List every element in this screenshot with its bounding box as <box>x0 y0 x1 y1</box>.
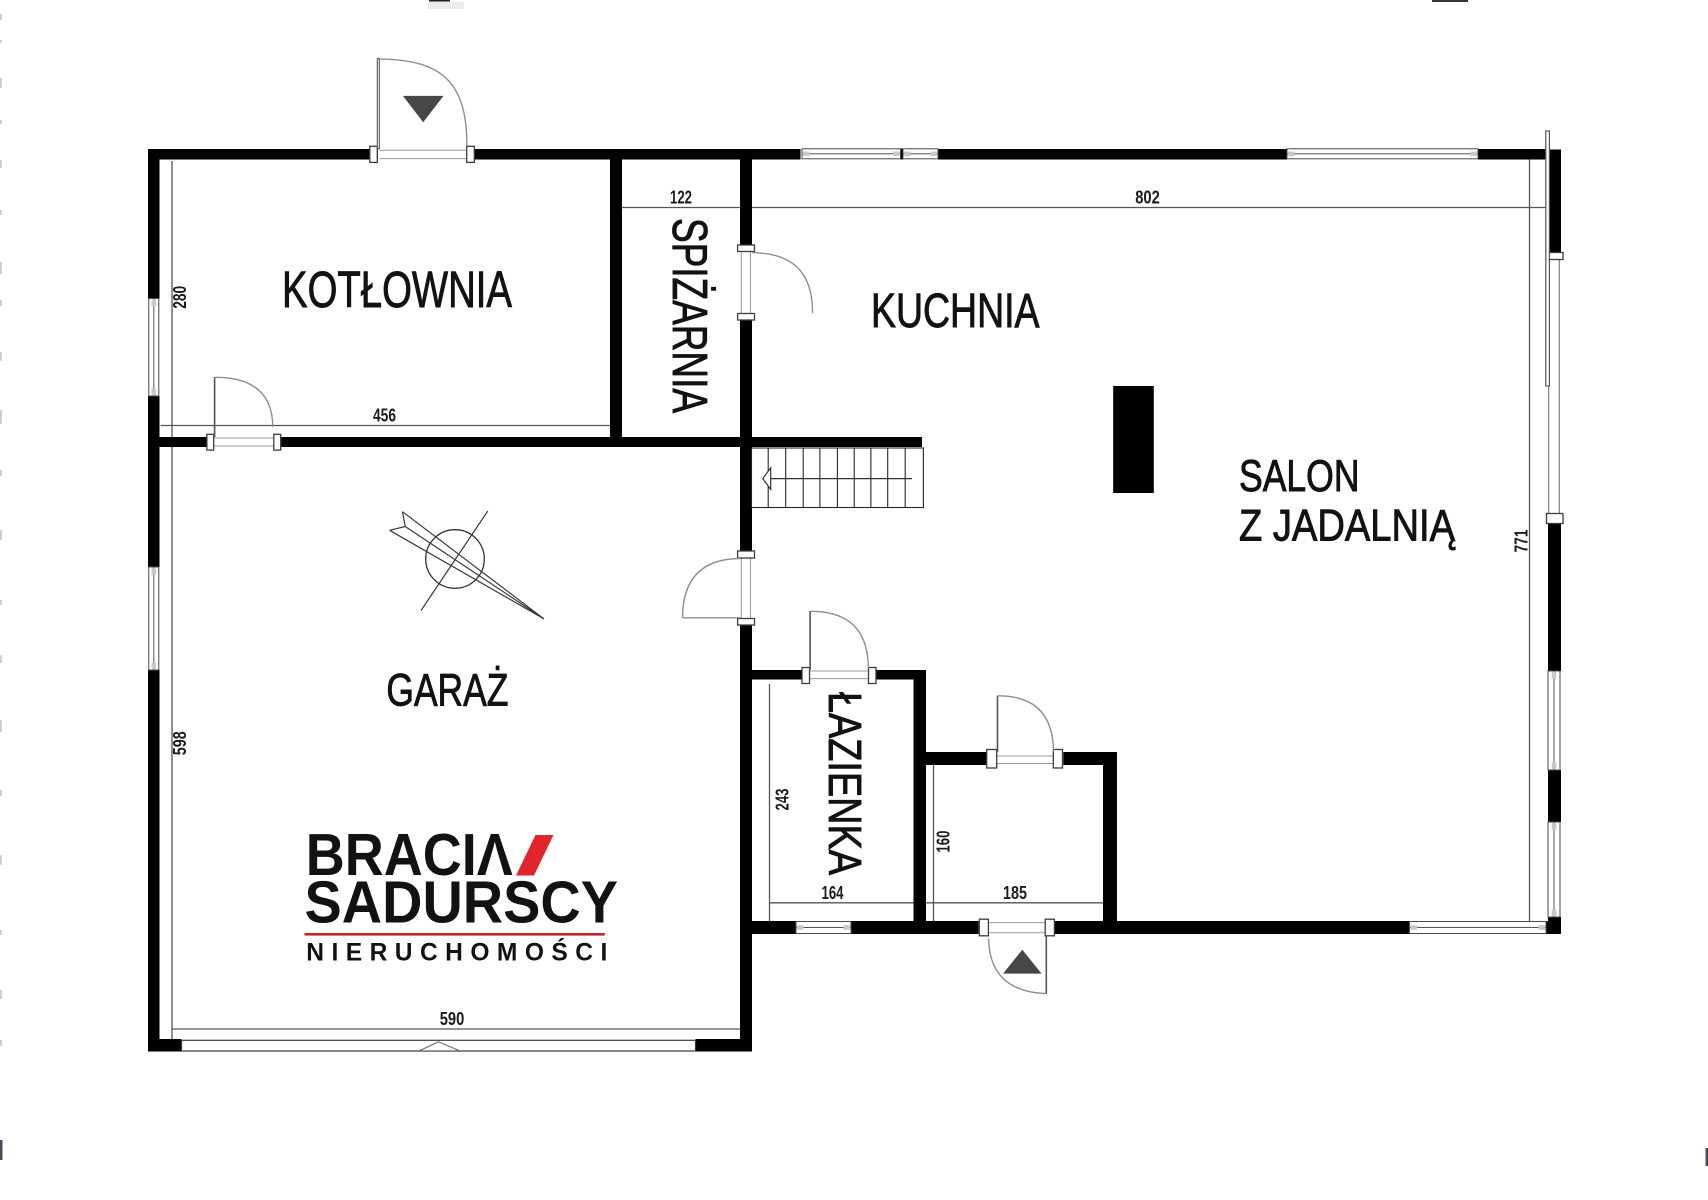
svg-text:280: 280 <box>169 286 190 309</box>
svg-text:164: 164 <box>822 882 845 903</box>
svg-text:NIERUCHOMOŚCI: NIERUCHOMOŚCI <box>306 939 607 967</box>
svg-text:160: 160 <box>933 831 954 853</box>
svg-text:243: 243 <box>772 789 793 811</box>
svg-text:SADURSCY: SADURSCY <box>305 869 619 936</box>
svg-text:771: 771 <box>1511 530 1532 553</box>
svg-text:ŁAZIENKA: ŁAZIENKA <box>819 692 871 875</box>
svg-text:185: 185 <box>1003 882 1027 903</box>
svg-text:590: 590 <box>440 1008 465 1029</box>
svg-text:802: 802 <box>1135 187 1160 208</box>
svg-text:KUCHNIA: KUCHNIA <box>871 284 1040 338</box>
svg-text:456: 456 <box>373 405 396 426</box>
svg-text:598: 598 <box>169 731 190 755</box>
svg-text:KOTŁOWNIA: KOTŁOWNIA <box>282 261 512 318</box>
svg-text:122: 122 <box>670 187 692 208</box>
svg-text:SPIŻARNIA: SPIŻARNIA <box>662 218 717 413</box>
svg-text:SALON: SALON <box>1239 452 1360 501</box>
svg-text:Z JADALNIĄ: Z JADALNIĄ <box>1239 502 1455 551</box>
svg-text:GARAŻ: GARAŻ <box>386 664 508 715</box>
